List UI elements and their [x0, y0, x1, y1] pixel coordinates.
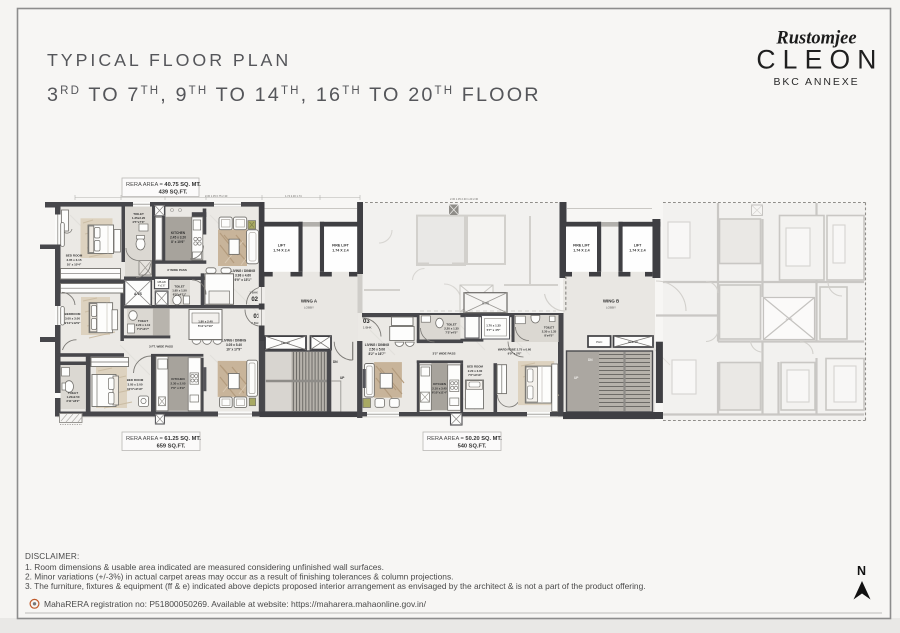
svg-text:3.05 x 3.15: 3.05 x 3.15	[66, 258, 81, 262]
svg-text:LOBBY: LOBBY	[606, 306, 616, 310]
svg-text:LIFT: LIFT	[634, 244, 642, 248]
svg-text:3'11"x8'2": 3'11"x8'2"	[66, 399, 80, 403]
svg-text:5'11"x7'10": 5'11"x7'10"	[198, 324, 214, 328]
svg-text:1.74 X 2.4: 1.74 X 2.4	[332, 249, 348, 253]
svg-text:WING B: WING B	[603, 299, 619, 304]
svg-text:9'10"x12'9": 9'10"x12'9"	[65, 321, 82, 325]
svg-text:3. The furniture, fixtures & e: 3. The furniture, fixtures & equipment (…	[25, 581, 646, 591]
svg-text:3.98 x 4.60: 3.98 x 4.60	[235, 274, 251, 278]
svg-text:MB-EB: MB-EB	[157, 280, 165, 284]
svg-text:1.74 X 2.4: 1.74 X 2.4	[573, 249, 589, 253]
svg-text:7'6" x 6'9": 7'6" x 6'9"	[171, 386, 186, 390]
svg-text:10' x 10'4": 10' x 10'4"	[67, 263, 82, 267]
svg-text:TYPICAL FLOOR PLAN: TYPICAL FLOOR PLAN	[47, 50, 291, 70]
svg-text:3' WIDE PASS: 3' WIDE PASS	[167, 268, 187, 272]
svg-text:2.30 1.35 2.30 1.20 2.30: 2.30 1.35 2.30 1.20 2.30	[450, 197, 479, 201]
svg-text:4'x1'6": 4'x1'6"	[158, 284, 166, 288]
svg-text:DISCLAIMER:: DISCLAIMER:	[25, 552, 80, 561]
svg-text:FIRE LIFT: FIRE LIFT	[573, 244, 591, 248]
svg-text:1.74 X 2.4: 1.74 X 2.4	[273, 249, 289, 253]
svg-text:659 SQ.FT.: 659 SQ.FT.	[157, 444, 186, 450]
svg-text:7'3"x3'7": 7'3"x3'7"	[137, 327, 150, 331]
svg-text:PHC: PHC	[596, 340, 603, 344]
svg-text:3.05 x 3.00: 3.05 x 3.00	[127, 383, 142, 387]
svg-text:LIVING / DINING: LIVING / DINING	[231, 269, 256, 273]
svg-text:BED ROOM: BED ROOM	[66, 254, 83, 258]
svg-text:03: 03	[363, 319, 370, 325]
svg-text:8'2" x 16'7": 8'2" x 16'7"	[369, 352, 386, 356]
svg-text:BED ROOM: BED ROOM	[127, 378, 144, 382]
svg-text:439 SQ.FT.: 439 SQ.FT.	[159, 190, 188, 196]
svg-text:CLEON: CLEON	[756, 45, 883, 75]
svg-text:MahaRERA registration no: P518: MahaRERA registration no: P51800050269. …	[44, 599, 427, 609]
svg-text:FIRE LIFT: FIRE LIFT	[332, 244, 350, 248]
svg-text:2. Minor variations (+/-3%) in: 2. Minor variations (+/-3%) in actual ca…	[25, 572, 453, 582]
svg-text:RERA AREA = 61.25 SQ. MT.: RERA AREA = 61.25 SQ. MT.	[126, 436, 201, 442]
svg-text:1 BHK: 1 BHK	[249, 291, 258, 295]
svg-text:A.VS: A.VS	[134, 292, 143, 296]
svg-text:9'9" x 15'1": 9'9" x 15'1"	[235, 278, 252, 282]
svg-text:8'x4'5": 8'x4'5"	[544, 334, 554, 338]
svg-text:5'7" x 4'5": 5'7" x 4'5"	[487, 328, 501, 332]
svg-text:LIVING / DINING: LIVING / DINING	[222, 339, 247, 343]
svg-text:1 BHK: 1 BHK	[363, 326, 372, 330]
svg-text:9'0" x 2'0": 9'0" x 2'0"	[508, 352, 522, 356]
svg-text:10' x 17'9": 10' x 17'9"	[226, 348, 242, 352]
svg-text:RERA AREA = 50.20 SQ. MT.: RERA AREA = 50.20 SQ. MT.	[427, 436, 502, 442]
svg-text:3 FT. WIDE PASS: 3 FT. WIDE PASS	[149, 345, 173, 349]
svg-text:DG-W: DG-W	[281, 341, 289, 345]
svg-text:A.VS: A.VS	[786, 317, 793, 321]
svg-text:LIVING / DINING: LIVING / DINING	[365, 343, 390, 347]
svg-text:6'5"x4'11": 6'5"x4'11"	[173, 293, 187, 297]
svg-text:KITCHEN: KITCHEN	[171, 231, 186, 235]
svg-text:LOBBY: LOBBY	[304, 306, 314, 310]
svg-text:1.74 X 2.4: 1.74 X 2.4	[629, 249, 645, 253]
svg-text:DN: DN	[588, 358, 593, 362]
svg-text:1.70 x 1.35: 1.70 x 1.35	[486, 324, 501, 328]
svg-text:A.VS: A.VS	[482, 302, 489, 306]
svg-text:10'0"x9'10": 10'0"x9'10"	[127, 387, 144, 391]
svg-text:7'2"x9'10": 7'2"x9'10"	[468, 373, 482, 377]
svg-text:1. Room dimensions & usable ar: 1. Room dimensions & usable area indicat…	[25, 562, 384, 572]
svg-text:8' x 10'6": 8' x 10'6"	[171, 240, 185, 244]
svg-text:6'10"x11'4": 6'10"x11'4"	[432, 391, 448, 395]
svg-text:2.45 x 3.20: 2.45 x 3.20	[170, 236, 186, 240]
svg-text:2.50 x 5.06: 2.50 x 5.06	[369, 348, 385, 352]
svg-text:2.30 x 2.05: 2.30 x 2.05	[170, 382, 185, 386]
svg-text:RERA AREA = 40.75 SQ. MT.: RERA AREA = 40.75 SQ. MT.	[126, 182, 201, 188]
svg-text:3'2" WIDE PASS: 3'2" WIDE PASS	[433, 352, 456, 356]
svg-text:BEDROOM: BEDROOM	[65, 312, 81, 316]
svg-text:LIFT: LIFT	[278, 244, 286, 248]
svg-text:7'2"x4'5": 7'2"x4'5"	[445, 331, 458, 335]
svg-text:BKC ANNEXE: BKC ANNEXE	[773, 76, 859, 88]
svg-text:3.05 x 5.40: 3.05 x 5.40	[226, 343, 242, 347]
svg-text:540 SQ.FT.: 540 SQ.FT.	[458, 444, 487, 450]
svg-text:WING A: WING A	[301, 299, 318, 304]
svg-text:4'5"x7'3": 4'5"x7'3"	[132, 220, 145, 224]
svg-text:ELE-W: ELE-W	[628, 340, 638, 344]
svg-text:3.00 x 3.00: 3.00 x 3.00	[65, 317, 80, 321]
svg-text:02: 02	[251, 297, 258, 303]
svg-text:1.80 x 2.40: 1.80 x 2.40	[198, 320, 213, 324]
svg-text:N: N	[857, 564, 866, 578]
svg-text:KITCHEN: KITCHEN	[171, 377, 184, 381]
svg-text:DN: DN	[333, 360, 338, 364]
